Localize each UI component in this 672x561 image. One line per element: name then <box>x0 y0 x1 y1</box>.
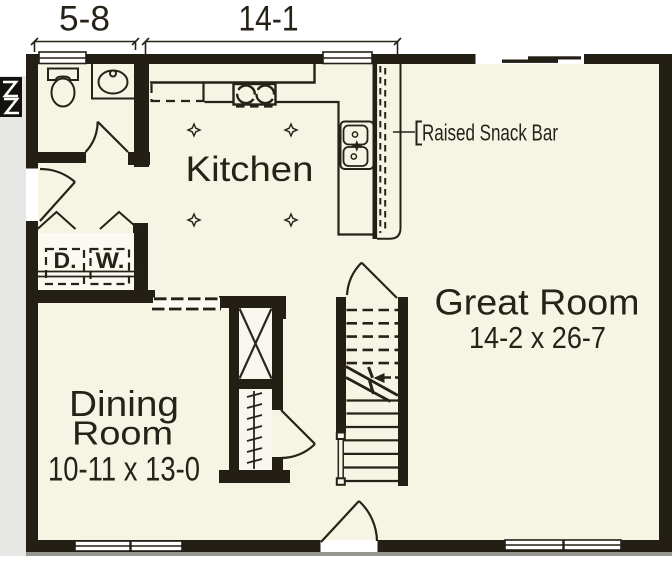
svg-text:Room: Room <box>72 415 173 452</box>
svg-text:W.: W. <box>96 248 125 273</box>
svg-text:14-2 x 26-7: 14-2 x 26-7 <box>469 321 606 355</box>
svg-text:Kitchen: Kitchen <box>186 150 314 189</box>
svg-text:Great Room: Great Room <box>435 282 640 323</box>
svg-text:10-11 x 13-0: 10-11 x 13-0 <box>48 451 200 489</box>
svg-text:14-1: 14-1 <box>239 0 299 39</box>
svg-text:Raised Snack Bar: Raised Snack Bar <box>422 120 558 146</box>
svg-text:D.: D. <box>54 248 77 273</box>
svg-text:5-8: 5-8 <box>59 0 110 39</box>
